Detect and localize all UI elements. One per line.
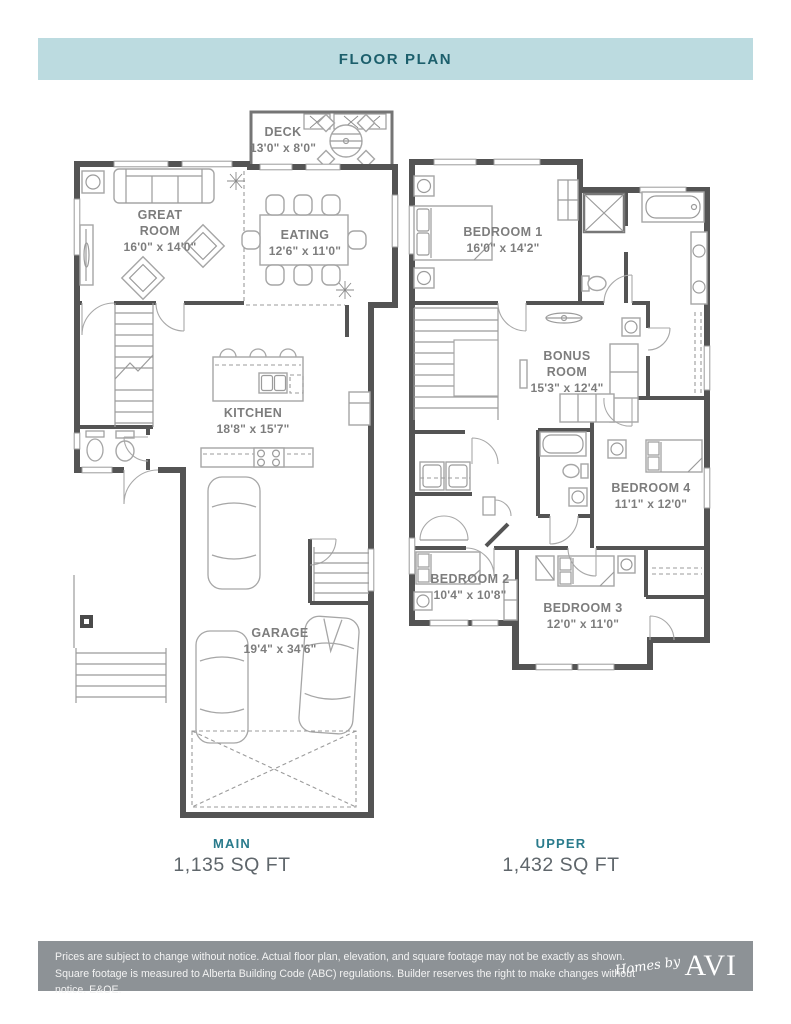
bonus-room-name-1: BONUS xyxy=(530,348,603,364)
bedroom3-name: BEDROOM 3 xyxy=(543,600,622,616)
great-room-dims: 16'0" x 14'0" xyxy=(123,239,196,255)
eating-dims: 12'6" x 11'0" xyxy=(269,243,341,259)
room-label-bedroom1: BEDROOM 1 16'0" x 14'2" xyxy=(463,224,542,256)
main-floor-name: MAIN xyxy=(173,836,290,851)
kitchen-dims: 18'8" x 15'7" xyxy=(216,421,289,437)
main-floor-plan: DECK 13'0" x 8'0" GREAT ROOM 16'0" x 14'… xyxy=(68,103,400,818)
great-room-name-2: ROOM xyxy=(123,223,196,239)
room-label-great-room: GREAT ROOM 16'0" x 14'0" xyxy=(123,207,196,255)
disclaimer-text: Prices are subject to change without not… xyxy=(55,949,655,999)
logo-serif-text: AVI xyxy=(685,951,737,981)
deck-dims: 13'0" x 8'0" xyxy=(250,140,316,156)
main-floor-drawing xyxy=(68,103,400,818)
homes-by-avi-logo: Homes by AVI xyxy=(615,951,737,981)
room-label-bonus-room: BONUS ROOM 15'3" x 12'4" xyxy=(530,348,603,396)
bedroom2-dims: 10'4" x 10'8" xyxy=(430,587,509,603)
bonus-room-dims: 15'3" x 12'4" xyxy=(530,380,603,396)
disclaimer-footer: Prices are subject to change without not… xyxy=(38,941,753,991)
main-floor-area: 1,135 SQ FT xyxy=(173,854,290,877)
room-label-kitchen: KITCHEN 18'8" x 15'7" xyxy=(216,405,289,437)
page-title: FLOOR PLAN xyxy=(339,51,453,68)
room-label-garage: GARAGE 19'4" x 34'6" xyxy=(243,625,316,657)
room-label-bedroom4: BEDROOM 4 11'1" x 12'0" xyxy=(611,480,690,512)
bonus-room-name-2: ROOM xyxy=(530,364,603,380)
eating-name: EATING xyxy=(269,227,341,243)
garage-name: GARAGE xyxy=(243,625,316,641)
upper-floor-name: UPPER xyxy=(502,836,619,851)
floor-plan-page: FLOOR PLAN xyxy=(0,0,791,1024)
great-room-name-1: GREAT xyxy=(123,207,196,223)
bedroom1-dims: 16'0" x 14'2" xyxy=(463,240,542,256)
bedroom4-dims: 11'1" x 12'0" xyxy=(611,496,690,512)
bedroom3-dims: 12'0" x 11'0" xyxy=(543,616,622,632)
upper-floor-plan: BEDROOM 1 16'0" x 14'2" BONUS ROOM 15'3"… xyxy=(408,148,740,680)
floor-plan-banner: FLOOR PLAN xyxy=(38,38,753,80)
logo-script-text: Homes by xyxy=(614,954,681,978)
deck-name: DECK xyxy=(250,124,316,140)
bedroom4-name: BEDROOM 4 xyxy=(611,480,690,496)
bedroom1-name: BEDROOM 1 xyxy=(463,224,542,240)
room-label-bedroom2: BEDROOM 2 10'4" x 10'8" xyxy=(430,571,509,603)
main-floor-caption: MAIN 1,135 SQ FT xyxy=(173,836,290,877)
bedroom2-name: BEDROOM 2 xyxy=(430,571,509,587)
upper-floor-caption: UPPER 1,432 SQ FT xyxy=(502,836,619,877)
kitchen-name: KITCHEN xyxy=(216,405,289,421)
upper-floor-area: 1,432 SQ FT xyxy=(502,854,619,877)
room-label-bedroom3: BEDROOM 3 12'0" x 11'0" xyxy=(543,600,622,632)
room-label-deck: DECK 13'0" x 8'0" xyxy=(250,124,316,156)
garage-dims: 19'4" x 34'6" xyxy=(243,641,316,657)
room-label-eating: EATING 12'6" x 11'0" xyxy=(269,227,341,259)
